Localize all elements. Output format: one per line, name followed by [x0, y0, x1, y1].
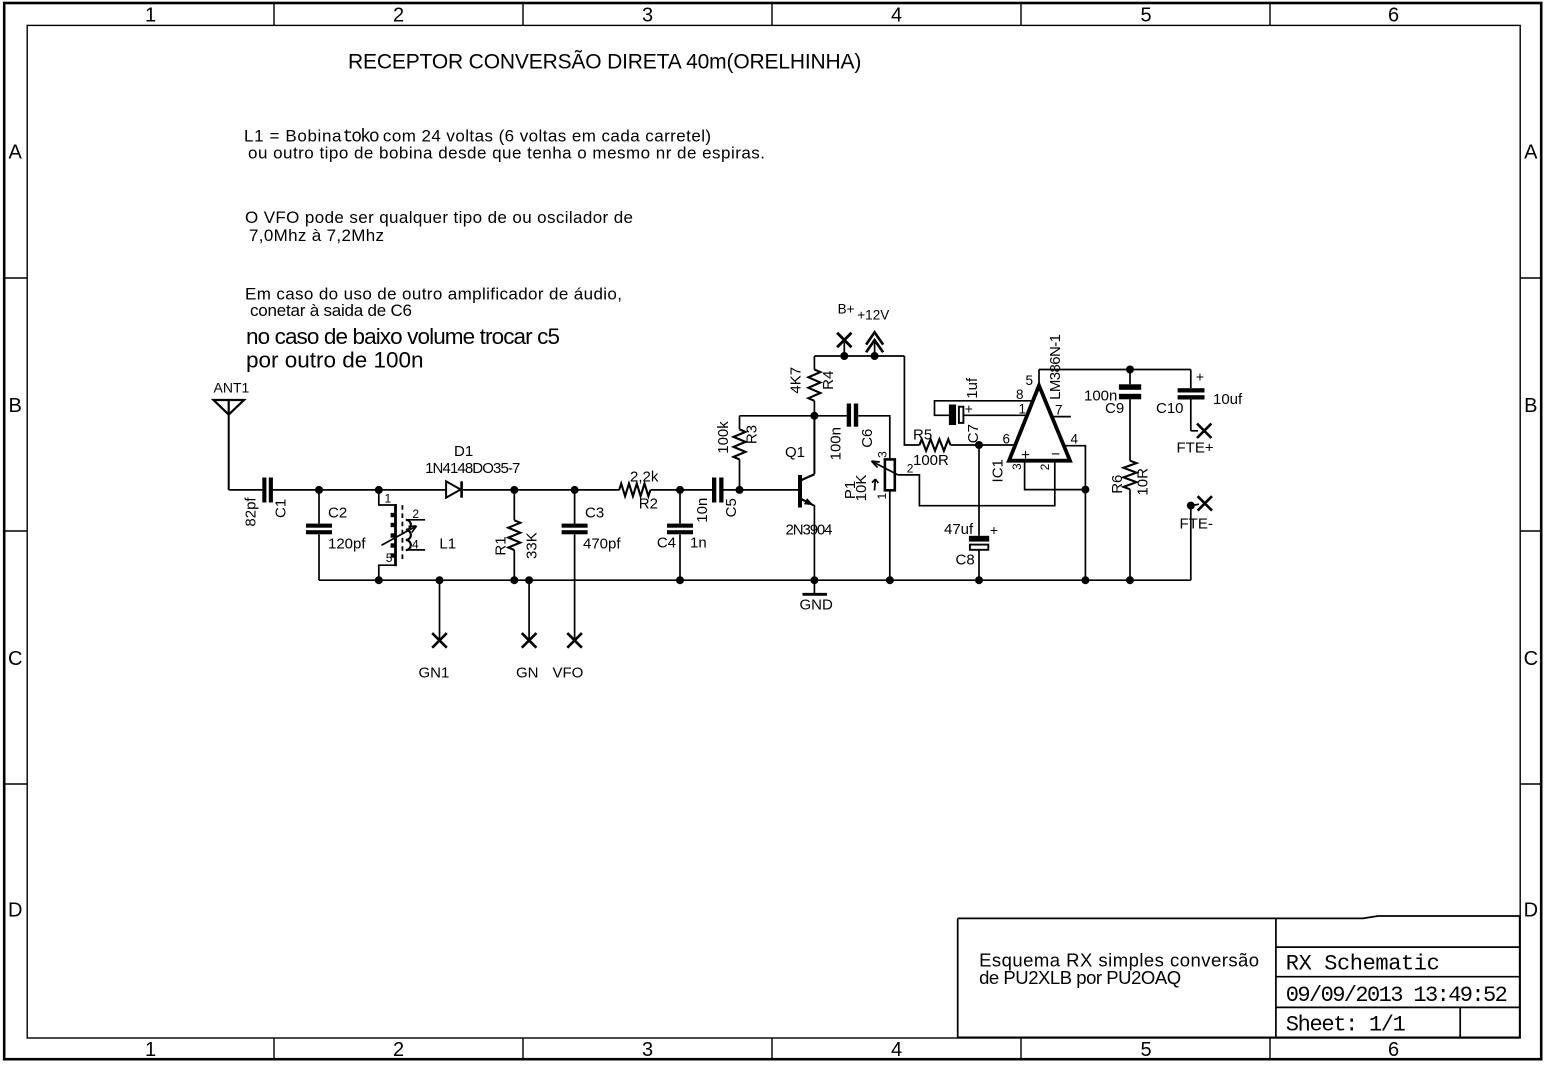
svg-text:ANT1: ANT1 [214, 379, 250, 395]
svg-text:RX Schematic: RX Schematic [1286, 952, 1440, 977]
svg-text:6: 6 [1388, 5, 1399, 27]
svg-text:B: B [9, 395, 22, 417]
svg-text:C: C [1524, 648, 1538, 670]
svg-text:C1: C1 [273, 499, 290, 518]
svg-text:B+: B+ [838, 302, 855, 317]
svg-text:R1: R1 [492, 536, 509, 555]
svg-text:6: 6 [1388, 1039, 1399, 1061]
svg-text:2: 2 [393, 5, 404, 27]
svg-text:FTE-: FTE- [1180, 516, 1213, 533]
svg-text:470pf: 470pf [583, 535, 621, 552]
svg-text:D1: D1 [454, 443, 473, 460]
svg-text:2: 2 [393, 1039, 404, 1061]
svg-text:L1: L1 [439, 535, 456, 552]
svg-text:4: 4 [412, 537, 419, 551]
svg-text:1n: 1n [690, 535, 707, 552]
svg-text:+: + [990, 522, 998, 538]
svg-text:por outro de 100n: por outro de 100n [246, 347, 424, 372]
svg-text:3: 3 [642, 5, 653, 27]
svg-text:5: 5 [1025, 373, 1033, 388]
svg-text:C3: C3 [585, 505, 604, 522]
svg-text:7: 7 [1055, 403, 1063, 418]
svg-text:7,0Mhz à 7,2Mhz: 7,0Mhz à 7,2Mhz [249, 226, 384, 245]
svg-text:10uf: 10uf [1213, 391, 1243, 408]
svg-text:LM386N-1: LM386N-1 [1047, 334, 1064, 399]
svg-text:5: 5 [1140, 5, 1151, 27]
svg-text:+: + [965, 401, 973, 417]
svg-text:C: C [8, 648, 22, 670]
svg-text:10n: 10n [694, 498, 711, 523]
svg-text:+: + [1021, 447, 1030, 464]
svg-text:A: A [9, 142, 23, 164]
svg-text:C5: C5 [723, 498, 740, 517]
svg-text:1: 1 [145, 1039, 156, 1061]
svg-text:1N4148DO35-7: 1N4148DO35-7 [425, 460, 520, 477]
svg-text:2: 2 [1038, 463, 1052, 470]
svg-text:−: − [1051, 446, 1060, 463]
svg-text:Sheet: 1/1: Sheet: 1/1 [1286, 1012, 1406, 1037]
svg-text:5: 5 [386, 551, 393, 565]
svg-text:GND: GND [800, 597, 834, 614]
svg-text:2N3904: 2N3904 [786, 522, 833, 539]
svg-text:1: 1 [1019, 402, 1027, 417]
svg-text:10K: 10K [853, 475, 870, 502]
svg-text:1uf: 1uf [964, 377, 981, 399]
svg-text:8: 8 [1016, 387, 1024, 402]
svg-text:C6: C6 [859, 429, 876, 448]
svg-text:D: D [1524, 900, 1538, 922]
svg-text:O VFO pode ser qualquer tipo d: O VFO pode ser qualquer tipo de ou oscil… [245, 208, 633, 227]
svg-text:120pf: 120pf [328, 535, 366, 552]
svg-text:+12V: +12V [857, 308, 889, 323]
svg-text:100k: 100k [715, 421, 732, 454]
svg-text:3: 3 [642, 1039, 653, 1061]
svg-text:D: D [8, 900, 22, 922]
svg-text:GN: GN [516, 664, 539, 681]
svg-text:33K: 33K [523, 532, 540, 559]
svg-text:3: 3 [1010, 463, 1024, 470]
svg-text:C2: C2 [328, 505, 347, 522]
svg-text:A: A [1524, 142, 1538, 164]
svg-text:C9: C9 [1105, 400, 1124, 417]
svg-text:R4: R4 [820, 371, 837, 390]
svg-text:C4: C4 [657, 535, 676, 552]
svg-text:82pf: 82pf [242, 497, 259, 527]
svg-text:C8: C8 [956, 552, 975, 569]
svg-text:100n: 100n [828, 427, 845, 460]
svg-text:no caso de baixo volume trocar: no caso de baixo volume trocar c5 [246, 324, 560, 349]
svg-text:10R: 10R [1135, 468, 1152, 496]
svg-text:Q1: Q1 [785, 444, 805, 461]
svg-text:09/09/2013 13:49:52: 09/09/2013 13:49:52 [1286, 983, 1508, 1008]
svg-text:GN1: GN1 [419, 664, 450, 681]
svg-text:RECEPTOR CONVERSÃO DIRETA 40m(: RECEPTOR CONVERSÃO DIRETA 40m(ORELHINHA) [348, 50, 861, 74]
svg-text:4K7: 4K7 [787, 367, 804, 394]
svg-text:VFO: VFO [553, 664, 584, 681]
svg-text:6: 6 [1003, 432, 1011, 447]
svg-text:R3: R3 [744, 425, 761, 444]
svg-text:4: 4 [1071, 432, 1079, 447]
svg-text:3: 3 [875, 451, 889, 458]
svg-text:de PU2XLB por PU2OAQ: de PU2XLB por PU2OAQ [979, 967, 1181, 988]
svg-text:4: 4 [891, 5, 902, 27]
svg-text:100R: 100R [913, 452, 949, 469]
svg-text:1: 1 [145, 5, 156, 27]
svg-text:conetar à saida de C6: conetar à saida de C6 [250, 301, 412, 320]
svg-text:ou outro tipo de bobina desde: ou outro tipo de bobina desde que tenha … [248, 143, 765, 162]
svg-text:R6: R6 [1109, 475, 1126, 494]
svg-text:+: + [1196, 369, 1204, 385]
svg-text:FTE+: FTE+ [1177, 439, 1214, 456]
svg-text:4: 4 [891, 1039, 902, 1061]
svg-text:IC1: IC1 [989, 459, 1006, 482]
svg-text:2: 2 [412, 507, 419, 521]
svg-text:R5: R5 [913, 427, 932, 444]
svg-text:1: 1 [875, 493, 889, 500]
svg-text:R2: R2 [639, 496, 658, 513]
svg-text:1: 1 [385, 492, 392, 506]
svg-text:C10: C10 [1156, 400, 1184, 417]
svg-text:C7: C7 [965, 424, 982, 443]
svg-text:47uf: 47uf [944, 521, 974, 538]
svg-text:5: 5 [1140, 1039, 1151, 1061]
svg-text:B: B [1524, 395, 1537, 417]
svg-text:2,2k: 2,2k [630, 469, 659, 486]
